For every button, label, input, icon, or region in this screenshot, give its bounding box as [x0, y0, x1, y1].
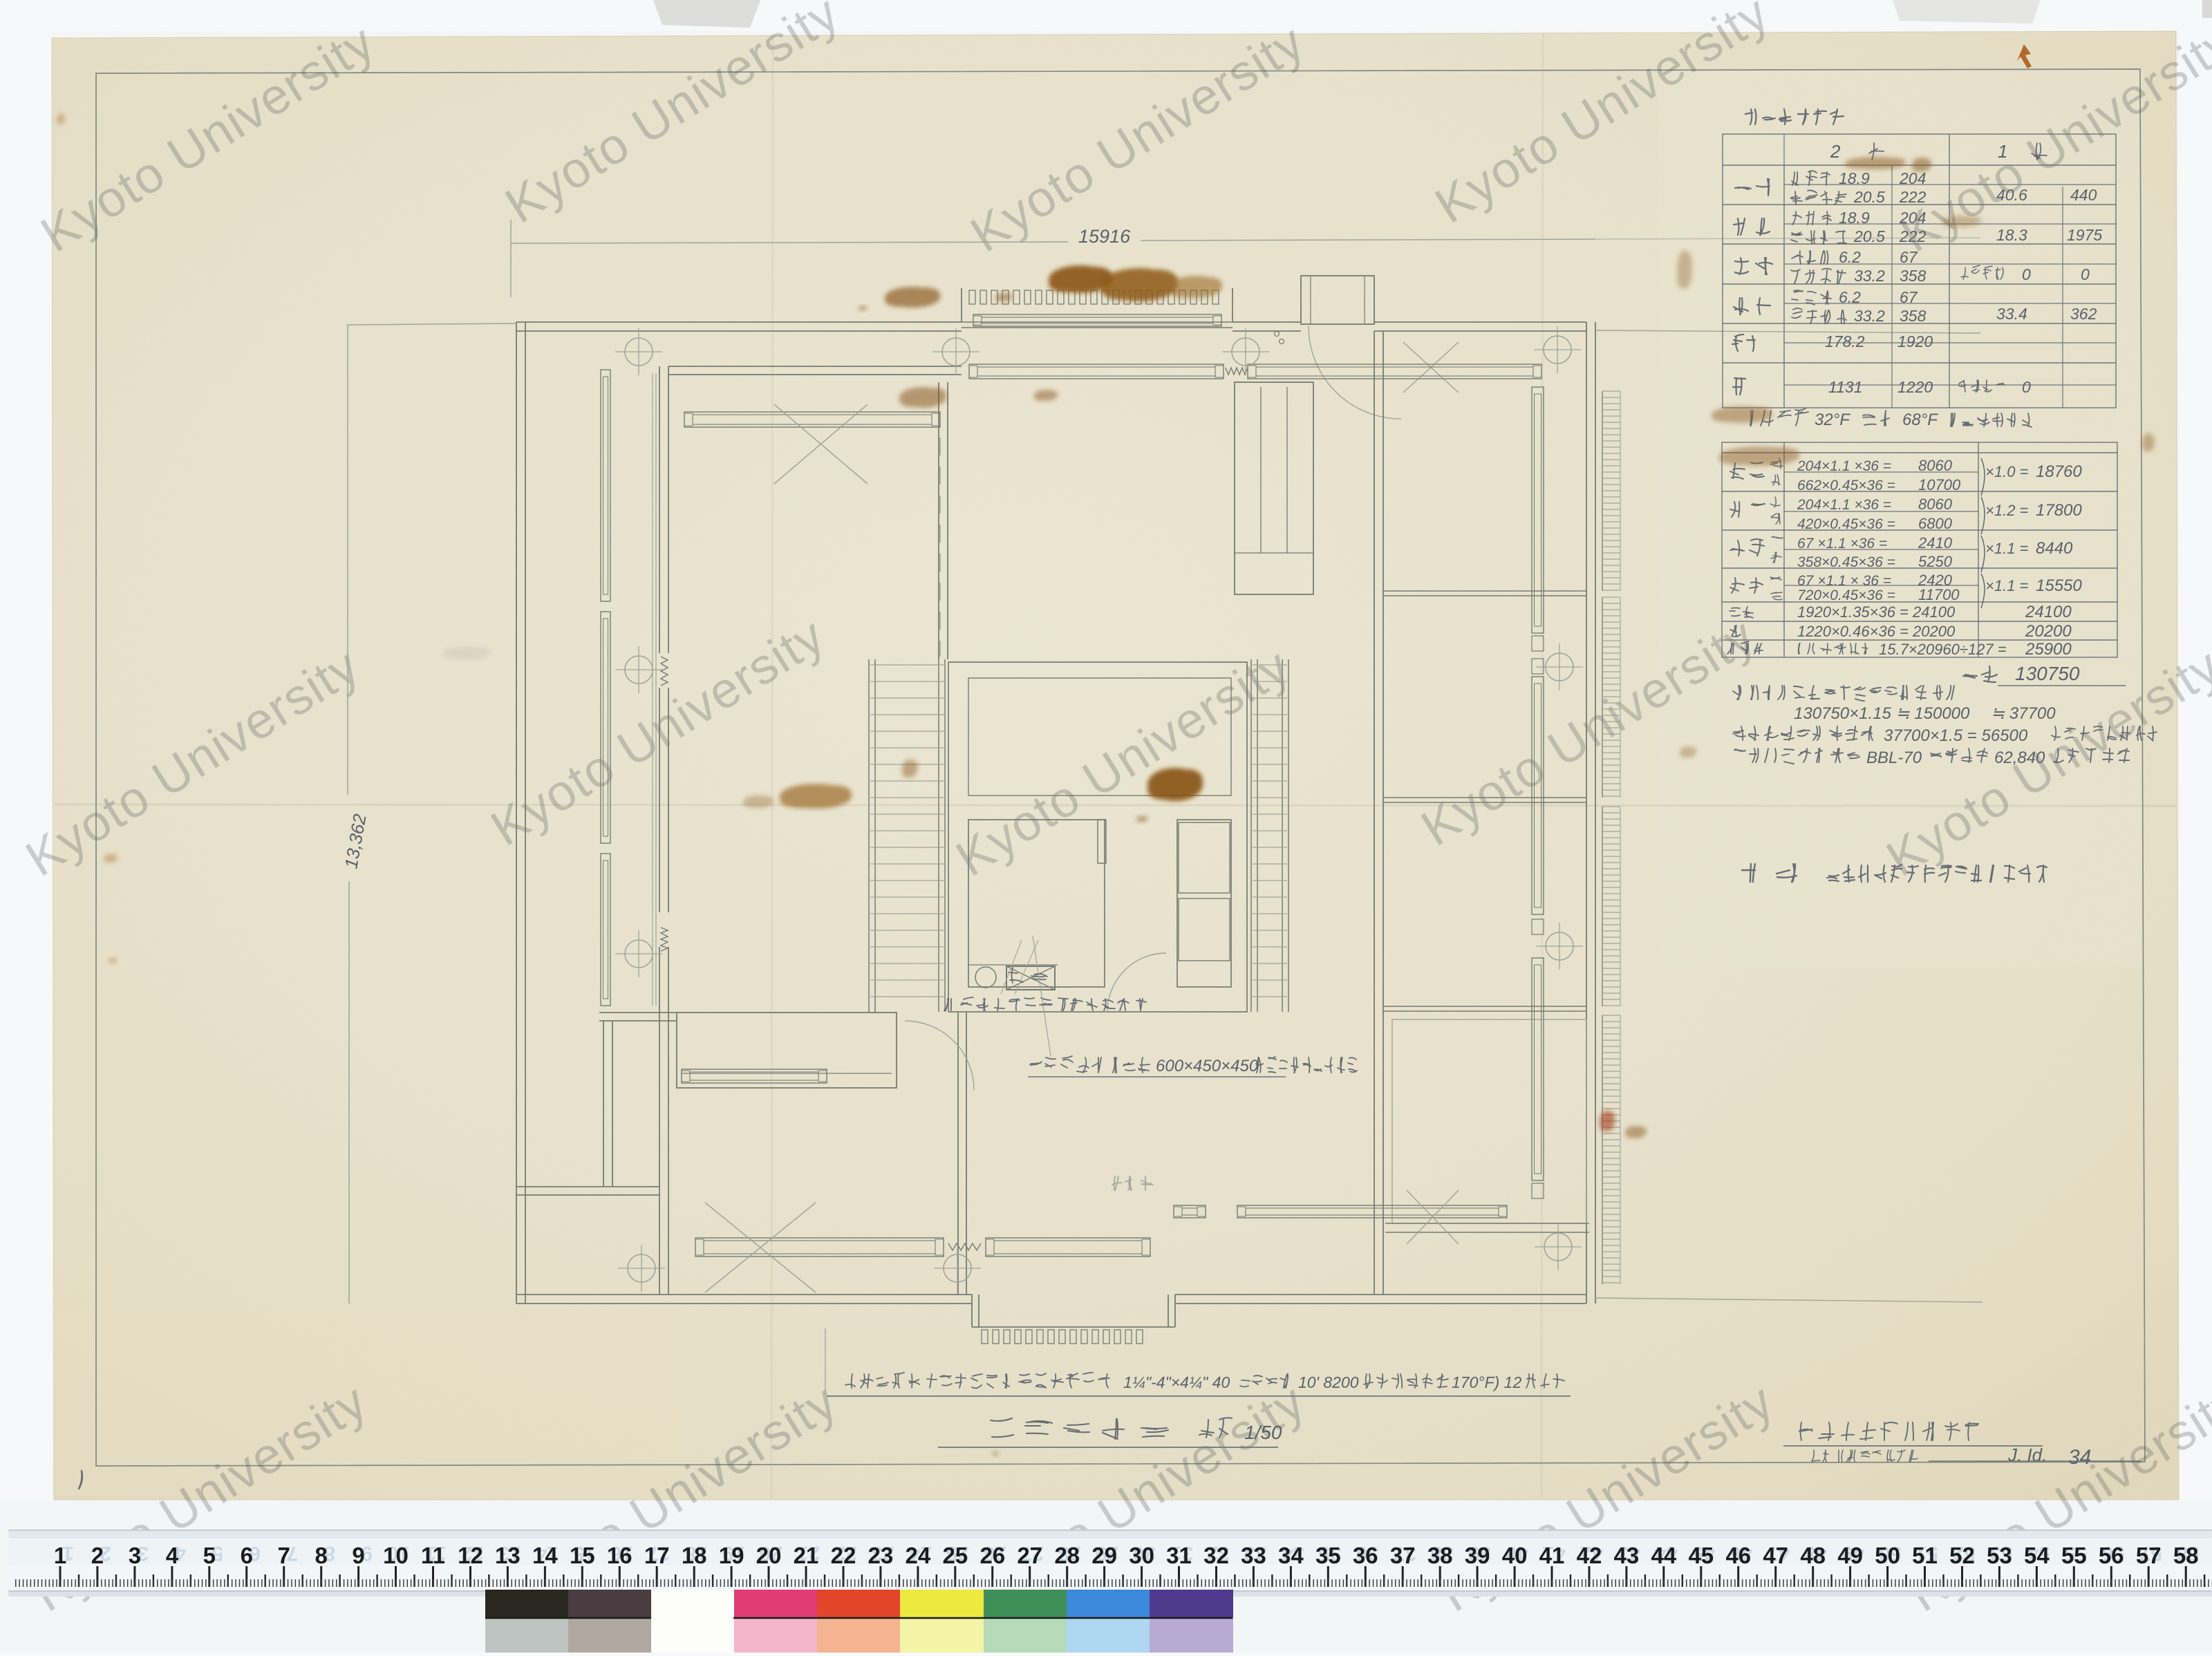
svg-text:24100: 24100 — [2025, 603, 2072, 621]
svg-text:47: 47 — [1763, 1543, 1788, 1568]
svg-text:56: 56 — [2099, 1543, 2124, 1568]
svg-text:11700: 11700 — [1918, 586, 1960, 603]
svg-text:36: 36 — [1353, 1543, 1378, 1568]
svg-text:204: 204 — [1899, 209, 1926, 227]
svg-text:2410: 2410 — [1918, 534, 1953, 552]
svg-text:358: 358 — [1900, 267, 1927, 285]
svg-text:2: 2 — [1830, 141, 1841, 162]
svg-text:8440: 8440 — [2036, 539, 2073, 558]
svg-text:13: 13 — [495, 1543, 521, 1568]
svg-text:34: 34 — [2068, 1446, 2091, 1469]
svg-text:10' 8200: 10' 8200 — [1298, 1373, 1359, 1391]
svg-text:2: 2 — [91, 1543, 104, 1568]
svg-text:1220×0.46×36 = 20200: 1220×0.46×36 = 20200 — [1797, 623, 1956, 640]
svg-text:×1.1 =: ×1.1 = — [1985, 577, 2029, 594]
svg-text:15: 15 — [570, 1543, 595, 1568]
svg-text:33.2: 33.2 — [1854, 267, 1885, 285]
svg-text:1975: 1975 — [2067, 226, 2102, 244]
svg-text:358×0.45×36 =: 358×0.45×36 = — [1797, 554, 1895, 570]
svg-text:6.2: 6.2 — [1839, 248, 1861, 266]
svg-text:27: 27 — [1017, 1543, 1042, 1568]
svg-text:67: 67 — [1900, 288, 1918, 306]
svg-text:54: 54 — [2024, 1543, 2050, 1568]
svg-text:204: 204 — [1899, 169, 1926, 187]
svg-text:42: 42 — [1577, 1543, 1602, 1568]
svg-text:130750: 130750 — [2015, 663, 2080, 684]
svg-text:6800: 6800 — [1918, 515, 1953, 532]
svg-text:58: 58 — [2173, 1543, 2199, 1568]
svg-text:5: 5 — [203, 1543, 216, 1568]
svg-text:22: 22 — [831, 1543, 856, 1568]
svg-text:43: 43 — [1614, 1543, 1640, 1568]
svg-text:1920×1.35×36 = 24100: 1920×1.35×36 = 24100 — [1797, 603, 1956, 621]
svg-text:15.7×20960÷127 =: 15.7×20960÷127 = — [1879, 641, 2007, 658]
svg-text:45: 45 — [1688, 1543, 1714, 1568]
svg-text:14: 14 — [532, 1543, 558, 1568]
svg-text:25900: 25900 — [2025, 640, 2072, 659]
svg-text:8060: 8060 — [1918, 496, 1953, 513]
svg-text:20: 20 — [756, 1543, 782, 1568]
svg-text:20.5: 20.5 — [1853, 188, 1885, 206]
svg-text:34: 34 — [1278, 1543, 1304, 1568]
svg-text:7: 7 — [278, 1543, 290, 1568]
svg-text:21: 21 — [794, 1543, 819, 1568]
svg-text:×1.0 =: ×1.0 = — [1985, 463, 2029, 480]
svg-text:26: 26 — [980, 1543, 1005, 1568]
svg-text:40.6: 40.6 — [1996, 186, 2027, 204]
svg-text:51: 51 — [1912, 1543, 1938, 1568]
svg-text:20.5: 20.5 — [1853, 227, 1885, 245]
svg-text:130750×1.15 ≒ 150000: 130750×1.15 ≒ 150000 — [1794, 704, 1970, 723]
svg-text:67 ×1.1 ×36 =: 67 ×1.1 ×36 = — [1797, 536, 1887, 552]
svg-text:15916: 15916 — [1078, 226, 1131, 247]
svg-text:1/50: 1/50 — [1244, 1422, 1282, 1443]
svg-text:5250: 5250 — [1918, 553, 1953, 570]
svg-text:0: 0 — [2022, 378, 2031, 396]
svg-text:17800: 17800 — [2036, 501, 2082, 520]
svg-text:362: 362 — [2070, 305, 2097, 323]
svg-text:20200: 20200 — [2025, 622, 2072, 641]
svg-text:32: 32 — [1203, 1543, 1229, 1568]
svg-text:39: 39 — [1465, 1543, 1490, 1568]
svg-text:3: 3 — [129, 1543, 141, 1568]
svg-text:24: 24 — [906, 1543, 931, 1568]
svg-text:0: 0 — [2081, 265, 2090, 283]
svg-text:37: 37 — [1390, 1543, 1416, 1568]
svg-text:358: 358 — [1900, 307, 1927, 325]
svg-text:28: 28 — [1054, 1543, 1080, 1568]
svg-text:18: 18 — [682, 1543, 707, 1568]
svg-text:18.3: 18.3 — [1996, 226, 2027, 244]
svg-text:33.2: 33.2 — [1854, 307, 1885, 325]
svg-text:6.2: 6.2 — [1839, 288, 1861, 306]
svg-text:BBL-70: BBL-70 — [1866, 749, 1922, 767]
svg-text:38: 38 — [1427, 1543, 1453, 1568]
svg-text:49: 49 — [1837, 1543, 1863, 1568]
svg-text:44: 44 — [1651, 1543, 1676, 1568]
svg-text:222: 222 — [1899, 227, 1927, 245]
svg-text:50: 50 — [1875, 1543, 1900, 1568]
svg-text:420×0.45×36 =: 420×0.45×36 = — [1797, 516, 1895, 532]
svg-text:29: 29 — [1091, 1543, 1117, 1568]
svg-text:25: 25 — [942, 1543, 968, 1568]
svg-text:57: 57 — [2136, 1543, 2162, 1568]
svg-text:1¼"-4"×4¼" 40: 1¼"-4"×4¼" 40 — [1123, 1373, 1230, 1391]
svg-text:204×1.1 ×36 =: 204×1.1 ×36 = — [1797, 458, 1891, 474]
svg-text:19: 19 — [719, 1543, 744, 1568]
svg-text:18760: 18760 — [2036, 462, 2082, 481]
svg-text:31: 31 — [1166, 1543, 1192, 1568]
svg-text:9: 9 — [352, 1543, 364, 1568]
svg-text:18.9: 18.9 — [1839, 209, 1870, 227]
svg-text:17: 17 — [644, 1543, 670, 1568]
svg-text:30: 30 — [1129, 1543, 1154, 1568]
svg-text:720×0.45×36 =: 720×0.45×36 = — [1797, 587, 1895, 603]
svg-text:J. Id.: J. Id. — [2007, 1445, 2047, 1465]
svg-text:4: 4 — [166, 1543, 179, 1568]
svg-text:41: 41 — [1539, 1543, 1565, 1568]
svg-text:53: 53 — [1987, 1543, 2012, 1568]
svg-text:11: 11 — [421, 1543, 445, 1568]
svg-text:40: 40 — [1502, 1543, 1528, 1568]
svg-text:55: 55 — [2061, 1543, 2087, 1568]
svg-text:10700: 10700 — [1918, 476, 1961, 493]
svg-text:67: 67 — [1900, 248, 1918, 266]
svg-text:23: 23 — [868, 1543, 894, 1568]
svg-text:67 ×1.1 × 36 =: 67 ×1.1 × 36 = — [1797, 573, 1891, 589]
svg-text:15550: 15550 — [2036, 576, 2082, 595]
svg-text:62,840: 62,840 — [1994, 749, 2045, 767]
svg-text:1131: 1131 — [1828, 378, 1862, 396]
svg-text:204×1.1 ×36 =: 204×1.1 ×36 = — [1797, 497, 1891, 513]
svg-text:16: 16 — [607, 1543, 632, 1568]
svg-text:6: 6 — [241, 1543, 253, 1568]
svg-text:178.2: 178.2 — [1825, 332, 1865, 350]
svg-text:600×450×450: 600×450×450 — [1156, 1057, 1259, 1075]
svg-text:52: 52 — [1949, 1543, 1975, 1568]
svg-text:×1.2 =: ×1.2 = — [1985, 502, 2029, 519]
svg-text:12: 12 — [458, 1543, 483, 1568]
svg-text:0: 0 — [2022, 265, 2031, 283]
svg-text:32°F: 32°F — [1815, 411, 1850, 429]
svg-text:1220: 1220 — [1897, 378, 1933, 396]
svg-text:1: 1 — [54, 1543, 66, 1568]
svg-text:48: 48 — [1800, 1543, 1826, 1568]
svg-text:1920: 1920 — [1897, 332, 1933, 350]
svg-text:440: 440 — [2070, 186, 2097, 204]
svg-text:46: 46 — [1725, 1543, 1751, 1568]
svg-text:68°F: 68°F — [1902, 411, 1938, 429]
svg-text:≒ 37700: ≒ 37700 — [1991, 704, 2056, 723]
svg-text:222: 222 — [1899, 188, 1927, 206]
svg-text:37700×1.5 = 56500: 37700×1.5 = 56500 — [1884, 726, 2028, 745]
svg-text:33.4: 33.4 — [1996, 305, 2027, 323]
svg-text:10: 10 — [383, 1543, 409, 1568]
svg-text:8060: 8060 — [1918, 457, 1953, 474]
svg-text:35: 35 — [1315, 1543, 1341, 1568]
svg-text:18.9: 18.9 — [1839, 169, 1870, 187]
svg-text:170°F) 12: 170°F) 12 — [1452, 1373, 1521, 1391]
svg-text:662×0.45×36 =: 662×0.45×36 = — [1797, 478, 1895, 493]
svg-text:1: 1 — [1998, 141, 2007, 162]
svg-text:33: 33 — [1241, 1543, 1266, 1568]
svg-text:8: 8 — [315, 1543, 328, 1568]
svg-text:×1.1 =: ×1.1 = — [1985, 540, 2029, 557]
